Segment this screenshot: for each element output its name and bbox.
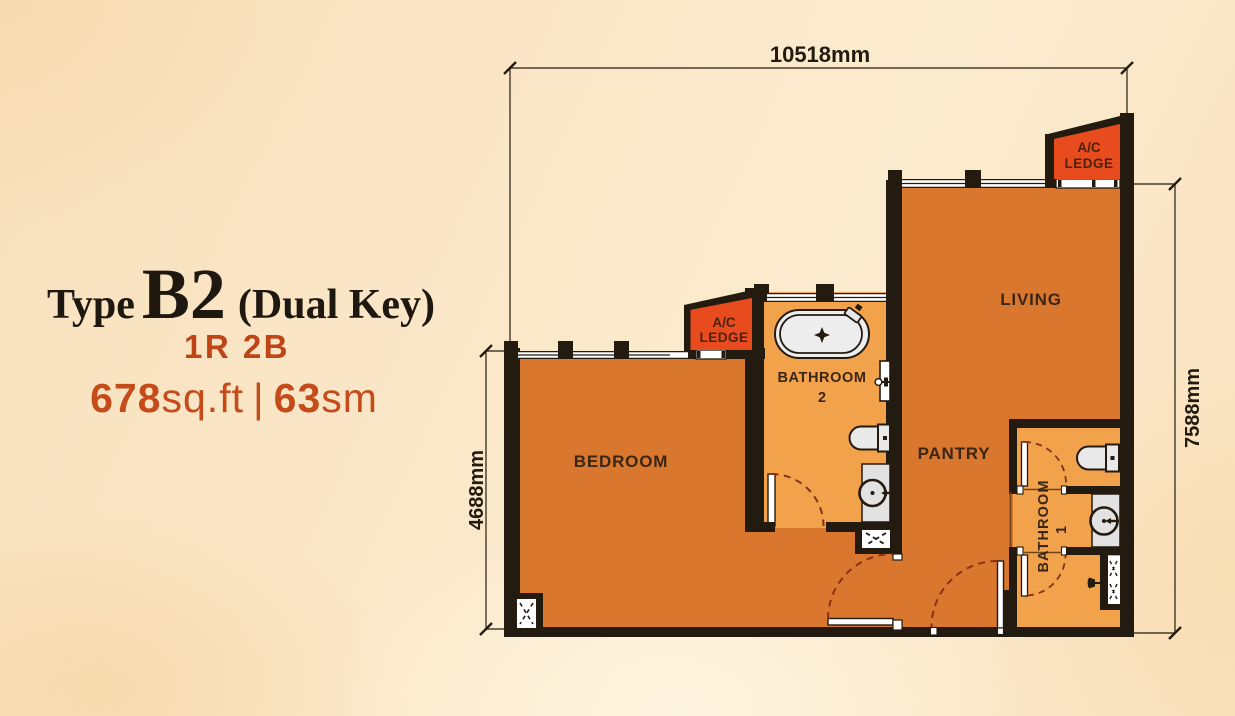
- svg-text:LEDGE: LEDGE: [699, 330, 748, 345]
- svg-text:1R 2B: 1R 2B: [184, 328, 290, 365]
- svg-text:A/C: A/C: [1077, 140, 1101, 155]
- svg-text:BATHROOM: BATHROOM: [777, 370, 866, 386]
- svg-text:BEDROOM: BEDROOM: [574, 452, 668, 471]
- svg-text:1: 1: [1054, 526, 1070, 534]
- svg-text:TypeB2(Dual Key): TypeB2(Dual Key): [47, 254, 435, 334]
- svg-text:2: 2: [818, 390, 826, 406]
- svg-text:10518mm: 10518mm: [770, 42, 870, 67]
- svg-text:A/C: A/C: [712, 315, 736, 330]
- svg-text:LEDGE: LEDGE: [1064, 156, 1113, 171]
- svg-text:BATHROOM: BATHROOM: [1036, 479, 1052, 572]
- svg-text:PANTRY: PANTRY: [918, 444, 991, 463]
- svg-text:LIVING: LIVING: [1000, 290, 1061, 309]
- svg-text:4688mm: 4688mm: [466, 450, 488, 530]
- svg-text:678sq.ft|63sm: 678sq.ft|63sm: [90, 375, 378, 421]
- svg-text:7588mm: 7588mm: [1182, 368, 1204, 448]
